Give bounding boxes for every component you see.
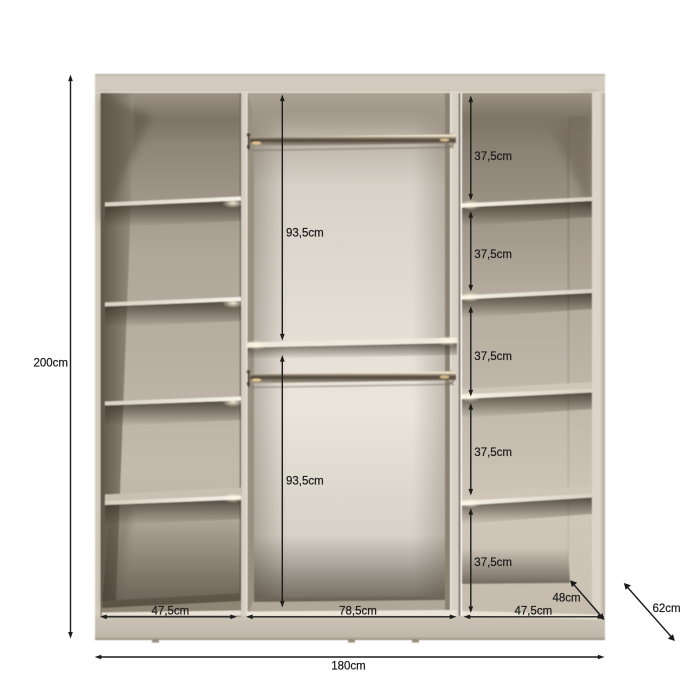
- svg-text:93,5cm: 93,5cm: [286, 476, 324, 488]
- svg-text:37,5cm: 37,5cm: [474, 151, 512, 163]
- svg-text:37,5cm: 37,5cm: [474, 249, 512, 261]
- svg-text:47,5cm: 47,5cm: [152, 605, 190, 617]
- svg-text:37,5cm: 37,5cm: [474, 447, 512, 459]
- svg-text:37,5cm: 37,5cm: [474, 557, 512, 569]
- svg-text:62cm: 62cm: [652, 603, 680, 615]
- svg-text:180cm: 180cm: [331, 660, 366, 672]
- svg-text:78,5cm: 78,5cm: [339, 605, 377, 617]
- svg-text:93,5cm: 93,5cm: [286, 228, 324, 240]
- svg-text:37,5cm: 37,5cm: [474, 351, 512, 363]
- svg-text:48cm: 48cm: [552, 593, 580, 605]
- svg-text:200cm: 200cm: [33, 357, 68, 369]
- svg-text:47,5cm: 47,5cm: [514, 605, 552, 617]
